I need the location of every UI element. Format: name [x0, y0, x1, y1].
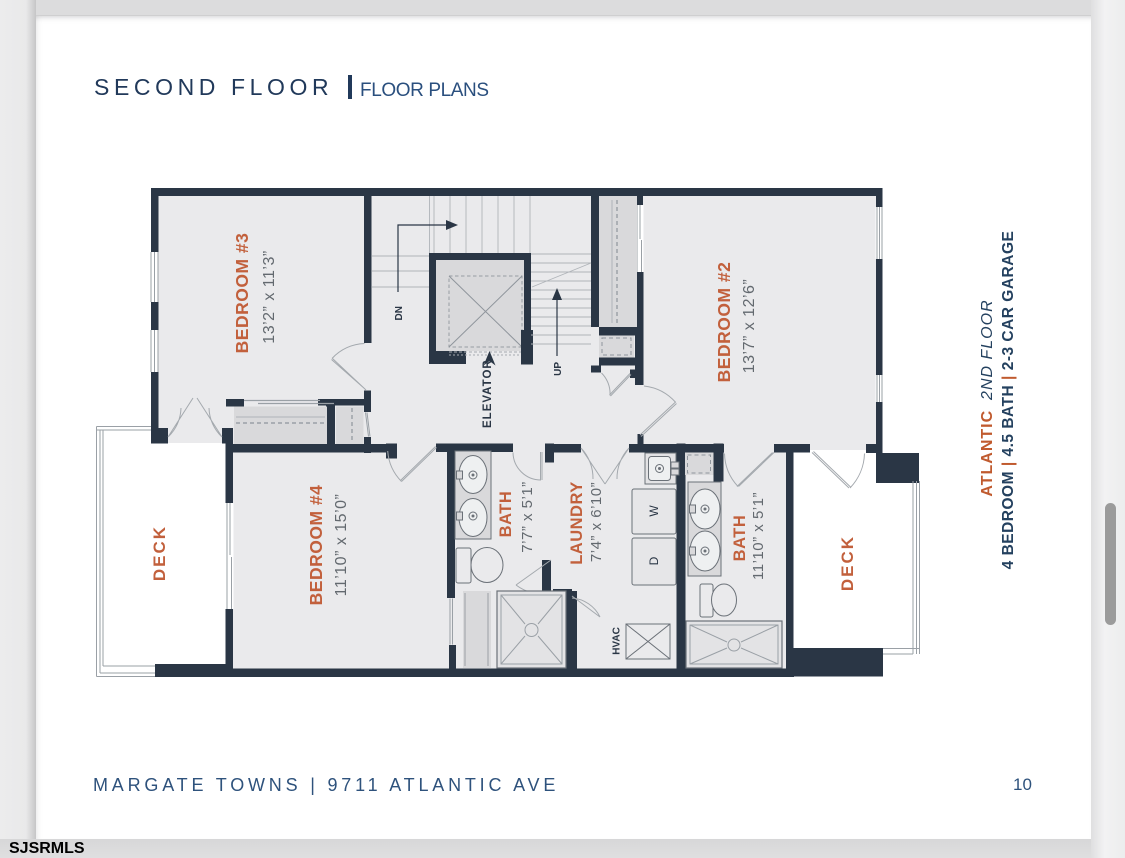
- svg-text:LAUNDRY: LAUNDRY: [568, 481, 586, 565]
- svg-text:BATH: BATH: [497, 491, 515, 538]
- svg-text:11’10” x 15’0”: 11’10” x 15’0”: [333, 494, 350, 597]
- svg-text:BEDROOM #4: BEDROOM #4: [306, 485, 326, 606]
- svg-text:13’2” x 11’3”: 13’2” x 11’3”: [261, 250, 278, 343]
- svg-text:D: D: [647, 556, 661, 565]
- svg-text:HVAC: HVAC: [612, 627, 623, 655]
- svg-text:ELEVATOR: ELEVATOR: [482, 359, 494, 428]
- svg-text:BEDROOM #3: BEDROOM #3: [232, 233, 252, 354]
- svg-text:UP: UP: [553, 362, 564, 376]
- svg-text:BEDROOM #2: BEDROOM #2: [714, 262, 734, 383]
- svg-text:7’4” x 6’10”: 7’4” x 6’10”: [588, 482, 605, 562]
- svg-text:7’7” x 5’1”: 7’7” x 5’1”: [519, 481, 536, 552]
- svg-text:DECK: DECK: [150, 525, 169, 581]
- svg-text:W: W: [647, 505, 661, 517]
- svg-text:DN: DN: [394, 306, 405, 320]
- svg-text:BATH: BATH: [731, 515, 749, 562]
- svg-text:DECK: DECK: [838, 535, 857, 591]
- svg-text:13’7” x 12’6”: 13’7” x 12’6”: [741, 279, 758, 374]
- svg-text:11’10” x 5’1”: 11’10” x 5’1”: [750, 492, 767, 580]
